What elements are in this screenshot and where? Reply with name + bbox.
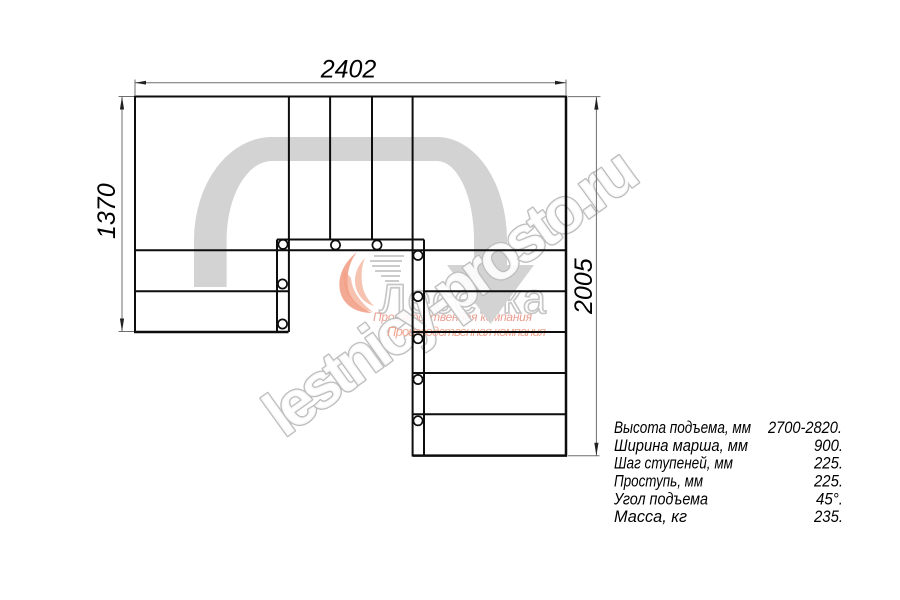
svg-text:2700-2820.: 2700-2820. bbox=[767, 419, 842, 437]
svg-text:Высота подъема, мм: Высота подъема, мм bbox=[614, 419, 751, 437]
svg-text:225.: 225. bbox=[813, 473, 843, 491]
svg-text:Угол подъема: Угол подъема bbox=[613, 490, 708, 508]
svg-text:2005: 2005 bbox=[570, 258, 598, 315]
svg-text:Проступь, мм: Проступь, мм bbox=[614, 473, 703, 491]
svg-text:Масса, кг: Масса, кг bbox=[614, 508, 687, 526]
svg-text:900.: 900. bbox=[814, 437, 843, 455]
svg-text:235.: 235. bbox=[813, 508, 843, 526]
svg-text:Шаг ступеней, мм: Шаг ступеней, мм bbox=[614, 455, 733, 473]
svg-text:225.: 225. bbox=[813, 455, 843, 473]
svg-text:45°.: 45°. bbox=[816, 490, 843, 508]
svg-text:1370: 1370 bbox=[93, 183, 121, 239]
svg-text:Ширина марша, мм: Ширина марша, мм bbox=[614, 437, 748, 455]
svg-text:2402: 2402 bbox=[320, 56, 377, 84]
